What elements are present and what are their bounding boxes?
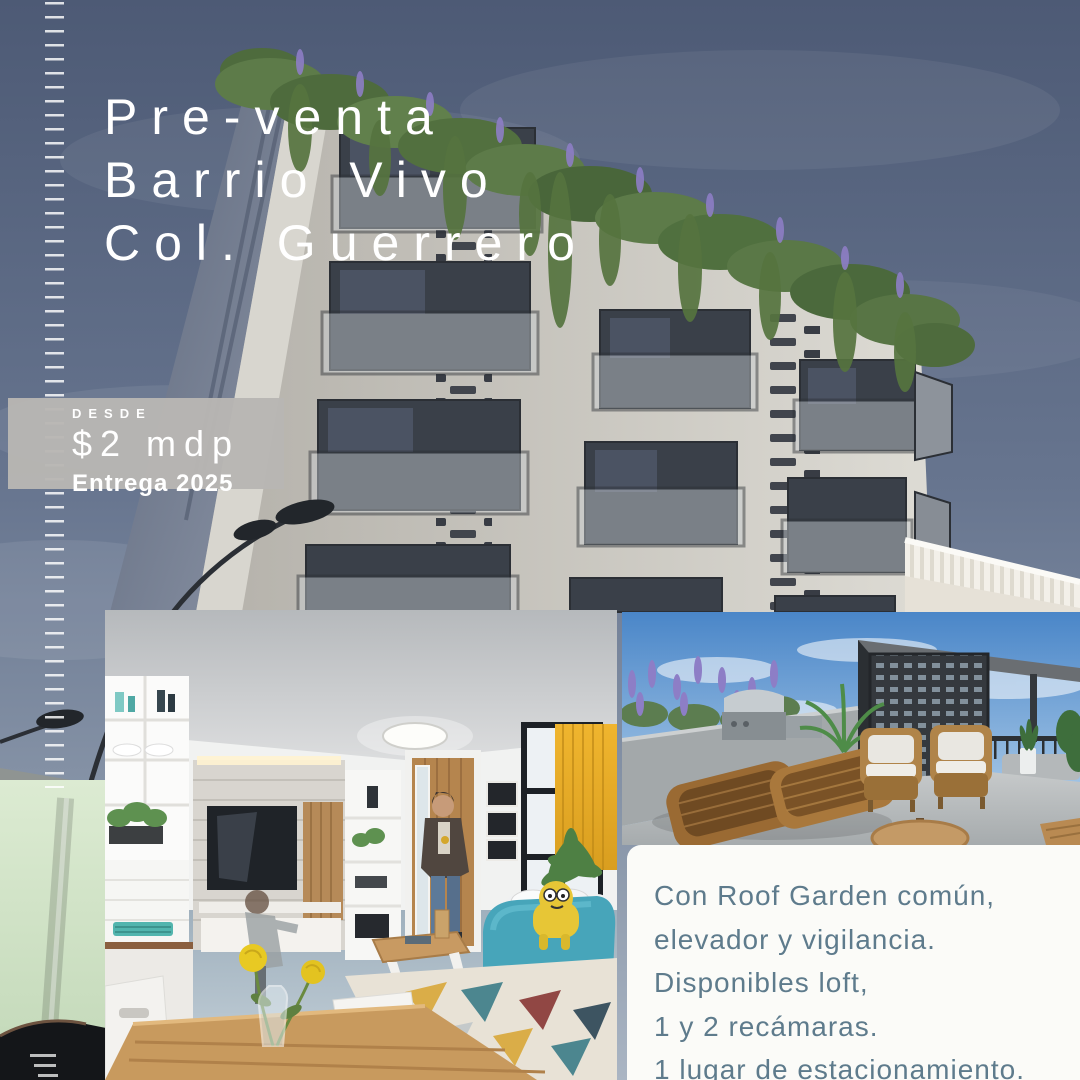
interior-photo <box>105 610 617 1080</box>
roof-garden-photo <box>622 612 1080 845</box>
title-line-3: Col. Guerrero <box>104 212 589 275</box>
description-line-2: elevador y vigilancia. <box>654 918 1070 962</box>
description-line-5: 1 lugar de estacionamiento. <box>654 1048 1070 1080</box>
description-box: Con Roof Garden común, elevador y vigila… <box>627 845 1080 1080</box>
dashed-line-decoration <box>45 2 64 788</box>
title-line-1: Pre-venta <box>104 86 589 149</box>
badge-delivery: Entrega 2025 <box>72 470 284 498</box>
real-estate-poster: Pre-venta Barrio Vivo Col. Guerrero DESD… <box>0 0 1080 1080</box>
description-line-1: Con Roof Garden común, <box>654 874 1070 918</box>
description-line-4: 1 y 2 recámaras. <box>654 1005 1070 1049</box>
description-line-3: Disponibles loft, <box>654 961 1070 1005</box>
badge-price: $2 mdp <box>72 423 284 465</box>
badge-label: DESDE <box>72 406 284 421</box>
title-line-2: Barrio Vivo <box>104 149 589 212</box>
poster-title: Pre-venta Barrio Vivo Col. Guerrero <box>104 86 589 275</box>
price-badge: DESDE $2 mdp Entrega 2025 <box>8 398 284 489</box>
description-text: Con Roof Garden común, elevador y vigila… <box>654 874 1070 1080</box>
